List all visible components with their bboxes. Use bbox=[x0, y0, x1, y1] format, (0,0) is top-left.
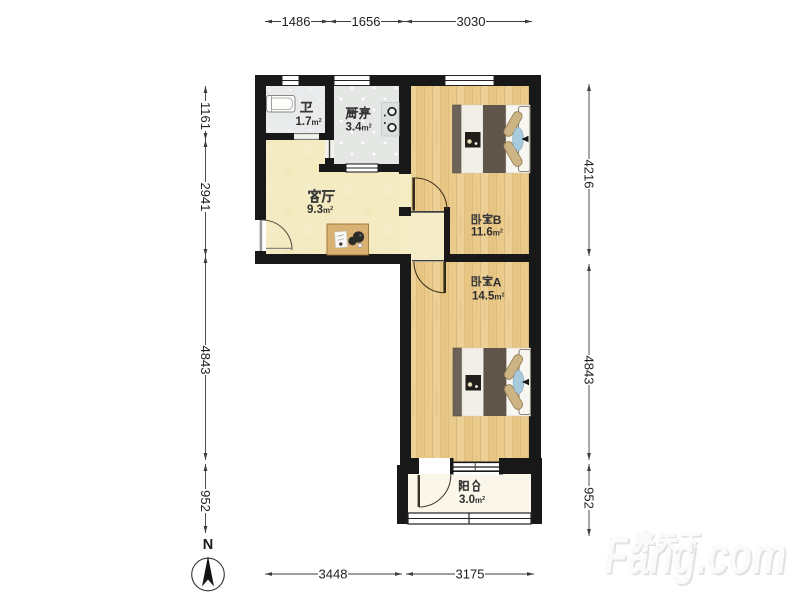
svg-text:1.7m2: 1.7m2 bbox=[296, 116, 322, 128]
svg-text:B: B bbox=[493, 213, 502, 227]
svg-text:3.4m2: 3.4m2 bbox=[346, 122, 372, 134]
svg-text:11.6m2: 11.6m2 bbox=[471, 227, 503, 239]
svg-text:2941: 2941 bbox=[198, 183, 213, 212]
svg-text:9.3m2: 9.3m2 bbox=[307, 204, 333, 216]
svg-text:4843: 4843 bbox=[198, 346, 213, 375]
svg-text:4216: 4216 bbox=[582, 160, 597, 189]
svg-text:1656: 1656 bbox=[352, 14, 381, 29]
svg-text:3030: 3030 bbox=[457, 14, 486, 29]
svg-text:A: A bbox=[493, 276, 502, 290]
svg-text:1161: 1161 bbox=[198, 102, 213, 130]
svg-text:1486: 1486 bbox=[282, 14, 311, 29]
svg-text:3448: 3448 bbox=[319, 567, 348, 582]
svg-text:N: N bbox=[203, 537, 213, 553]
svg-text:4843: 4843 bbox=[582, 356, 597, 385]
svg-text:3.0m2: 3.0m2 bbox=[459, 494, 485, 506]
svg-text:952: 952 bbox=[582, 487, 597, 509]
svg-text:952: 952 bbox=[198, 490, 213, 512]
svg-text:14.5m2: 14.5m2 bbox=[472, 291, 505, 303]
svg-text:3175: 3175 bbox=[456, 567, 485, 582]
